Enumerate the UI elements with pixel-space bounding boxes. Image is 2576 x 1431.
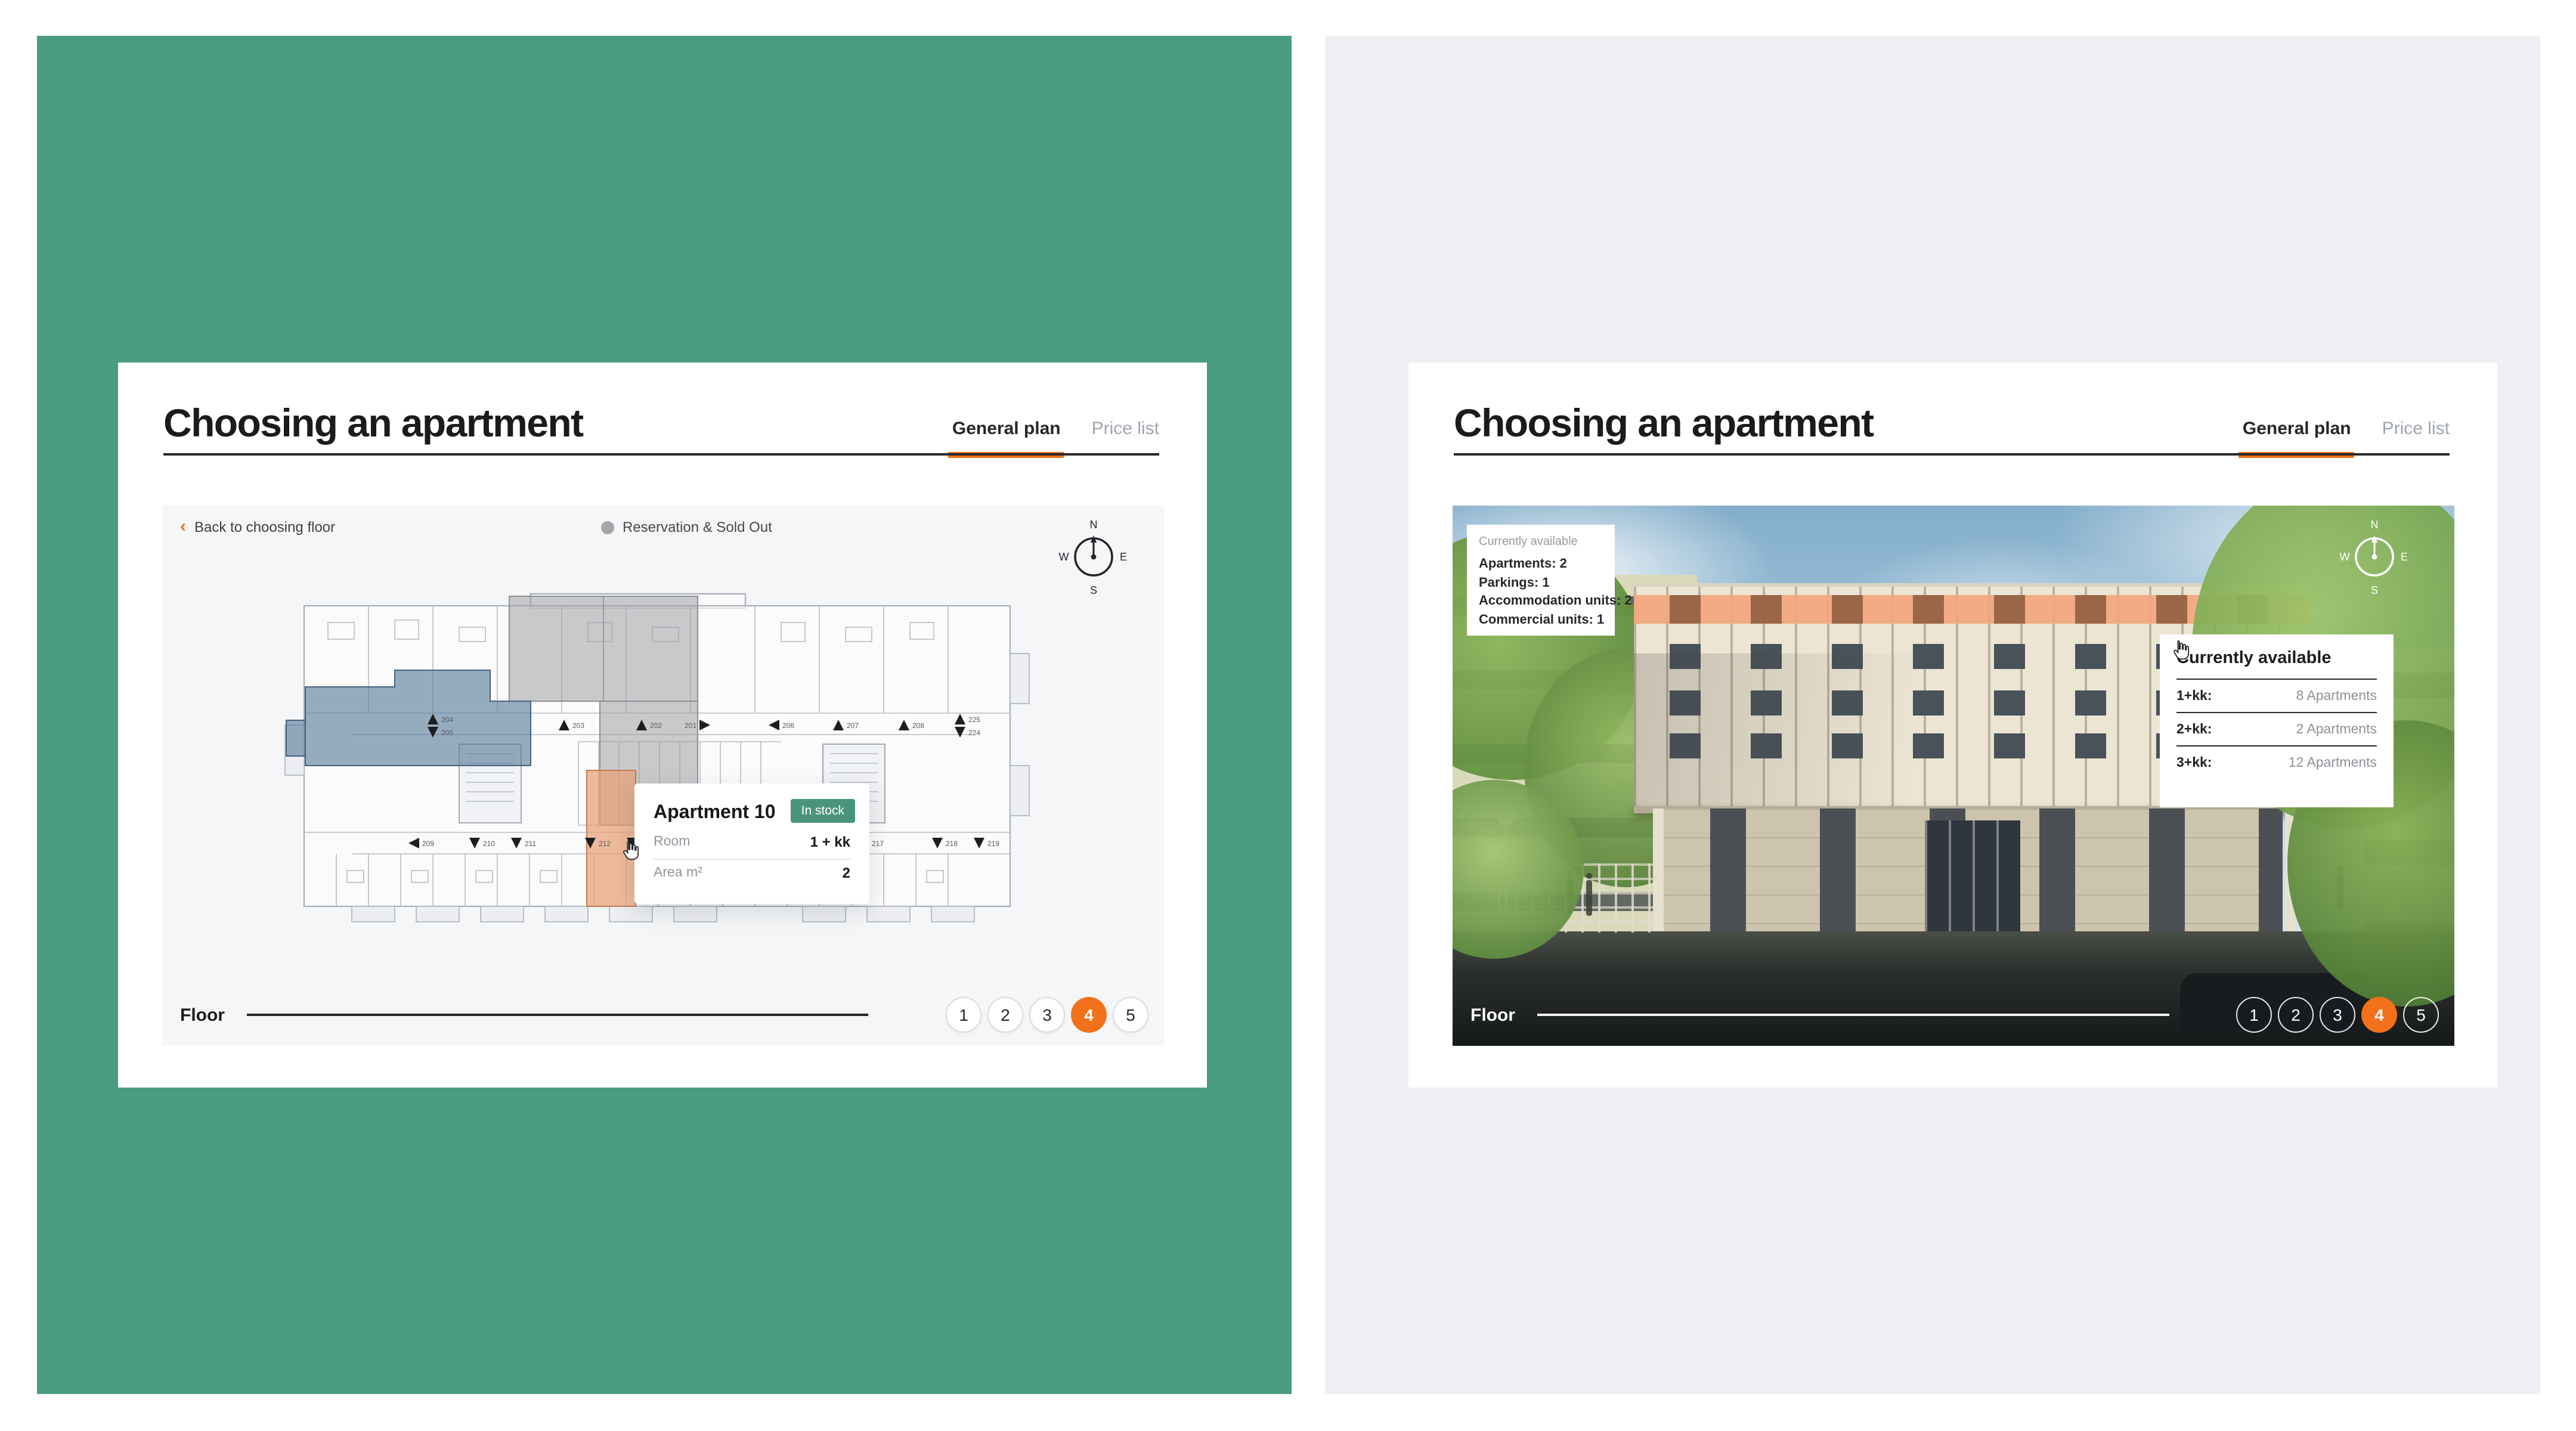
summary-apartments: Apartments: 2 (1479, 556, 1603, 574)
unit-number: 225 (968, 715, 980, 724)
page-title: Choosing an apartment (1454, 401, 1873, 446)
unit-number: 206 (782, 721, 794, 730)
floor-button-3[interactable]: 3 (1029, 997, 1065, 1033)
svg-text:N: N (1090, 519, 1098, 531)
floor-button-1[interactable]: 1 (2236, 997, 2272, 1033)
svg-text:E: E (2401, 551, 2408, 563)
back-to-floor-link[interactable]: ‹ Back to choosing floor (180, 519, 335, 535)
unit-number: 219 (987, 840, 999, 848)
right-card: Choosing an apartment General plan Price… (1408, 363, 2497, 1088)
summary-parkings: Parkings: 1 (1479, 574, 1603, 593)
availability-row-1kk: 1+kk: 8 Apartments (2176, 679, 2377, 712)
tab-bar: General plan Price list (2243, 419, 2450, 439)
unit-number: 224 (968, 729, 980, 737)
hand-cursor-icon (618, 837, 642, 863)
apartment-popup-title: Apartment 10 (654, 803, 776, 824)
hand-cursor-icon (2168, 637, 2192, 663)
summary-label: Currently available (1479, 535, 1603, 549)
floor-button-2[interactable]: 2 (987, 997, 1023, 1033)
person-silhouette (1586, 880, 1592, 916)
floor-button-5[interactable]: 5 (1113, 997, 1148, 1033)
gray-dot-icon (601, 521, 614, 534)
unit-number: 202 (650, 721, 662, 730)
unit-number: 208 (912, 721, 924, 730)
floorplan-area: ‹ Back to choosing floor Reservation & S… (162, 506, 1164, 1046)
unit-number: 201 (685, 721, 696, 730)
summary-accommodation: Accommodation units: 2 (1479, 593, 1603, 611)
tree-shadow (1634, 653, 2039, 809)
unit-number: 211 (525, 840, 536, 848)
unit-number: 203 (572, 721, 584, 730)
ground-floor (1662, 809, 2283, 931)
unit-number: 204 (441, 715, 453, 724)
svg-text:E: E (1120, 551, 1127, 563)
building-photo[interactable]: Currently available Apartments: 2 Parkin… (1453, 506, 2454, 1046)
availability-title: Currently available (2176, 649, 2377, 668)
svg-text:S: S (2371, 584, 2378, 596)
availability-table-box: Currently available 1+kk: 8 Apartments 2… (2160, 634, 2394, 807)
unit-number: 218 (946, 840, 958, 848)
left-panel: Choosing an apartment General plan Price… (37, 36, 1292, 1394)
stage: Choosing an apartment General plan Price… (0, 0, 2576, 1431)
svg-text:W: W (2340, 551, 2350, 563)
unit-number: 217 (872, 840, 884, 848)
legend-reservation-soldout: Reservation & Sold Out (601, 519, 772, 535)
apartment-popup: Apartment 10 In stock Room 1 + kk Area m… (634, 783, 869, 904)
floor-button-1[interactable]: 1 (946, 997, 982, 1033)
floor-label: Floor (1470, 1005, 1515, 1026)
unit-number: 207 (847, 721, 859, 730)
area-row: Area m² 2 (654, 865, 850, 881)
tab-price-list[interactable]: Price list (2382, 419, 2450, 439)
entrance-doors (1925, 820, 2020, 931)
summary-commercial: Commercial units: 1 (1479, 611, 1603, 630)
tab-price-list[interactable]: Price list (1092, 419, 1159, 439)
room-row: Room 1 + kk (654, 834, 850, 850)
availability-row-2kk: 2+kk: 2 Apartments (2176, 712, 2377, 745)
floor-divider-line (247, 1014, 868, 1016)
unit-number: 210 (483, 840, 495, 848)
header-rule (163, 453, 1159, 456)
floor-button-3[interactable]: 3 (2320, 997, 2355, 1033)
svg-text:S: S (1090, 584, 1097, 596)
floor-button-4-active[interactable]: 4 (1071, 997, 1107, 1033)
floor-button-2[interactable]: 2 (2278, 997, 2314, 1033)
page-title: Choosing an apartment (163, 401, 583, 446)
availability-row-3kk: 3+kk: 12 Apartments (2176, 745, 2377, 779)
svg-text:W: W (1059, 551, 1069, 563)
unit-number: 205 (441, 729, 453, 737)
floor-button-4-active[interactable]: 4 (2361, 997, 2397, 1033)
floor-button-5[interactable]: 5 (2403, 997, 2439, 1033)
in-stock-badge: In stock (791, 799, 855, 823)
svg-text:N: N (2371, 519, 2379, 531)
left-card: Choosing an apartment General plan Price… (118, 363, 1207, 1088)
availability-summary-box: Currently available Apartments: 2 Parkin… (1467, 525, 1615, 636)
chevron-left-icon: ‹ (180, 520, 186, 534)
compass-icon: N S E W (1054, 513, 1133, 599)
popup-divider (654, 859, 850, 860)
tab-general-plan[interactable]: General plan (2243, 419, 2351, 439)
unit-number: 212 (599, 840, 611, 848)
header-rule (1454, 453, 2450, 456)
tab-general-plan[interactable]: General plan (952, 419, 1061, 439)
unit-number: 209 (422, 840, 434, 848)
floor-label: Floor (180, 1005, 225, 1026)
tab-bar: General plan Price list (952, 419, 1159, 439)
right-panel: Choosing an apartment General plan Price… (1325, 36, 2540, 1394)
compass-icon: N S E W (2335, 513, 2414, 599)
floor-divider-line (1537, 1014, 2169, 1015)
